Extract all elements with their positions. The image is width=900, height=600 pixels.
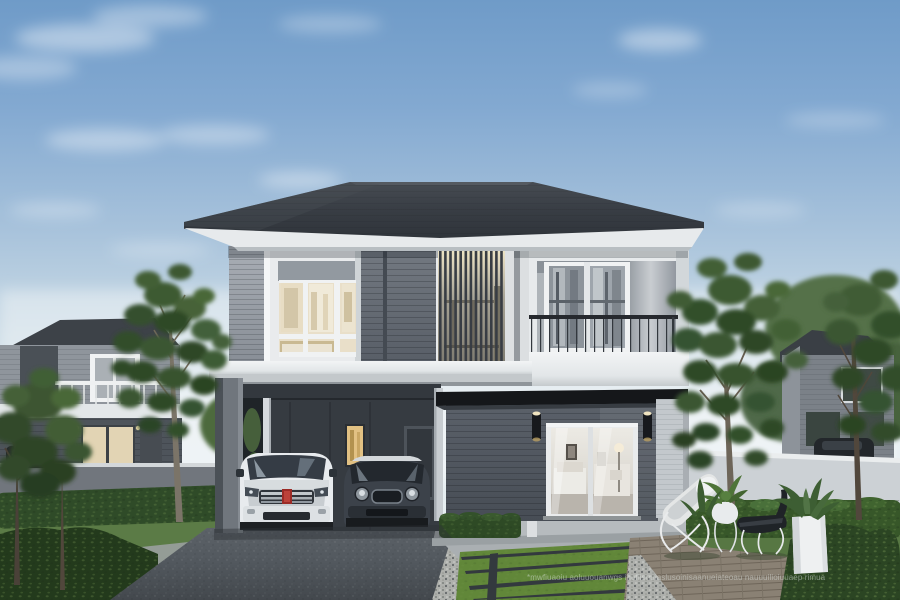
svg-text:*mwfiuaoiu aoluuouanwgs ihufii: *mwfiuaoiu aoluuouanwgs ihufiisnuiasluso… (527, 573, 826, 582)
